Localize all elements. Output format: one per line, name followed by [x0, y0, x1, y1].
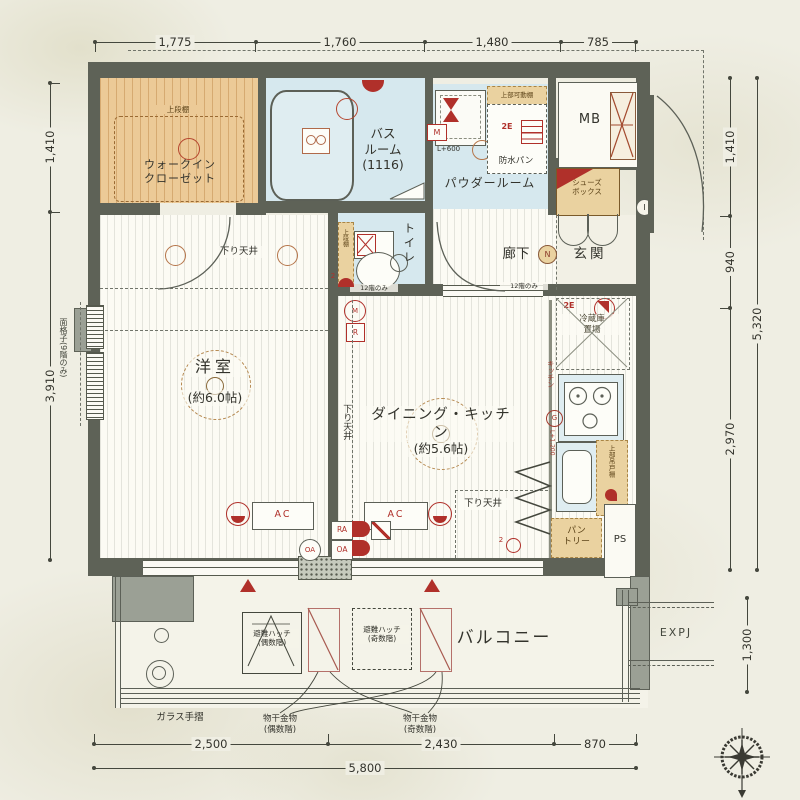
stove-burner-3: [583, 414, 597, 428]
plan-linework: [0, 0, 800, 800]
compass-pointer-tip: [738, 790, 746, 798]
washbasin-mark-bottom: [443, 110, 459, 122]
window-marker-west: [240, 579, 256, 592]
kitchen-zigzag: [516, 462, 550, 534]
wic-door-arc: [158, 217, 230, 289]
floor-plan: 上段棚 ウォークイン クローゼット バス ルーム (1116) M L+600 …: [0, 0, 800, 800]
leader-odd-a: [330, 672, 412, 713]
stove-dot-2: [600, 394, 603, 397]
stove-dot-1: [576, 394, 579, 397]
laundry-diag-2: [420, 608, 450, 670]
hatch-even-glyph: [248, 616, 294, 666]
laundry-diag-1: [308, 608, 338, 670]
compass-icon: [714, 728, 770, 798]
leader-even-b: [290, 672, 436, 714]
entrance-door-arc: [657, 96, 703, 232]
powder-door-arc: [437, 222, 505, 291]
le ader-even-a: [280, 672, 318, 713]
washbasin-mark-top: [443, 98, 459, 110]
window-marker-dk: [424, 579, 440, 592]
compass-needle-ew: [728, 753, 756, 761]
bath-door-icon: [390, 183, 424, 199]
